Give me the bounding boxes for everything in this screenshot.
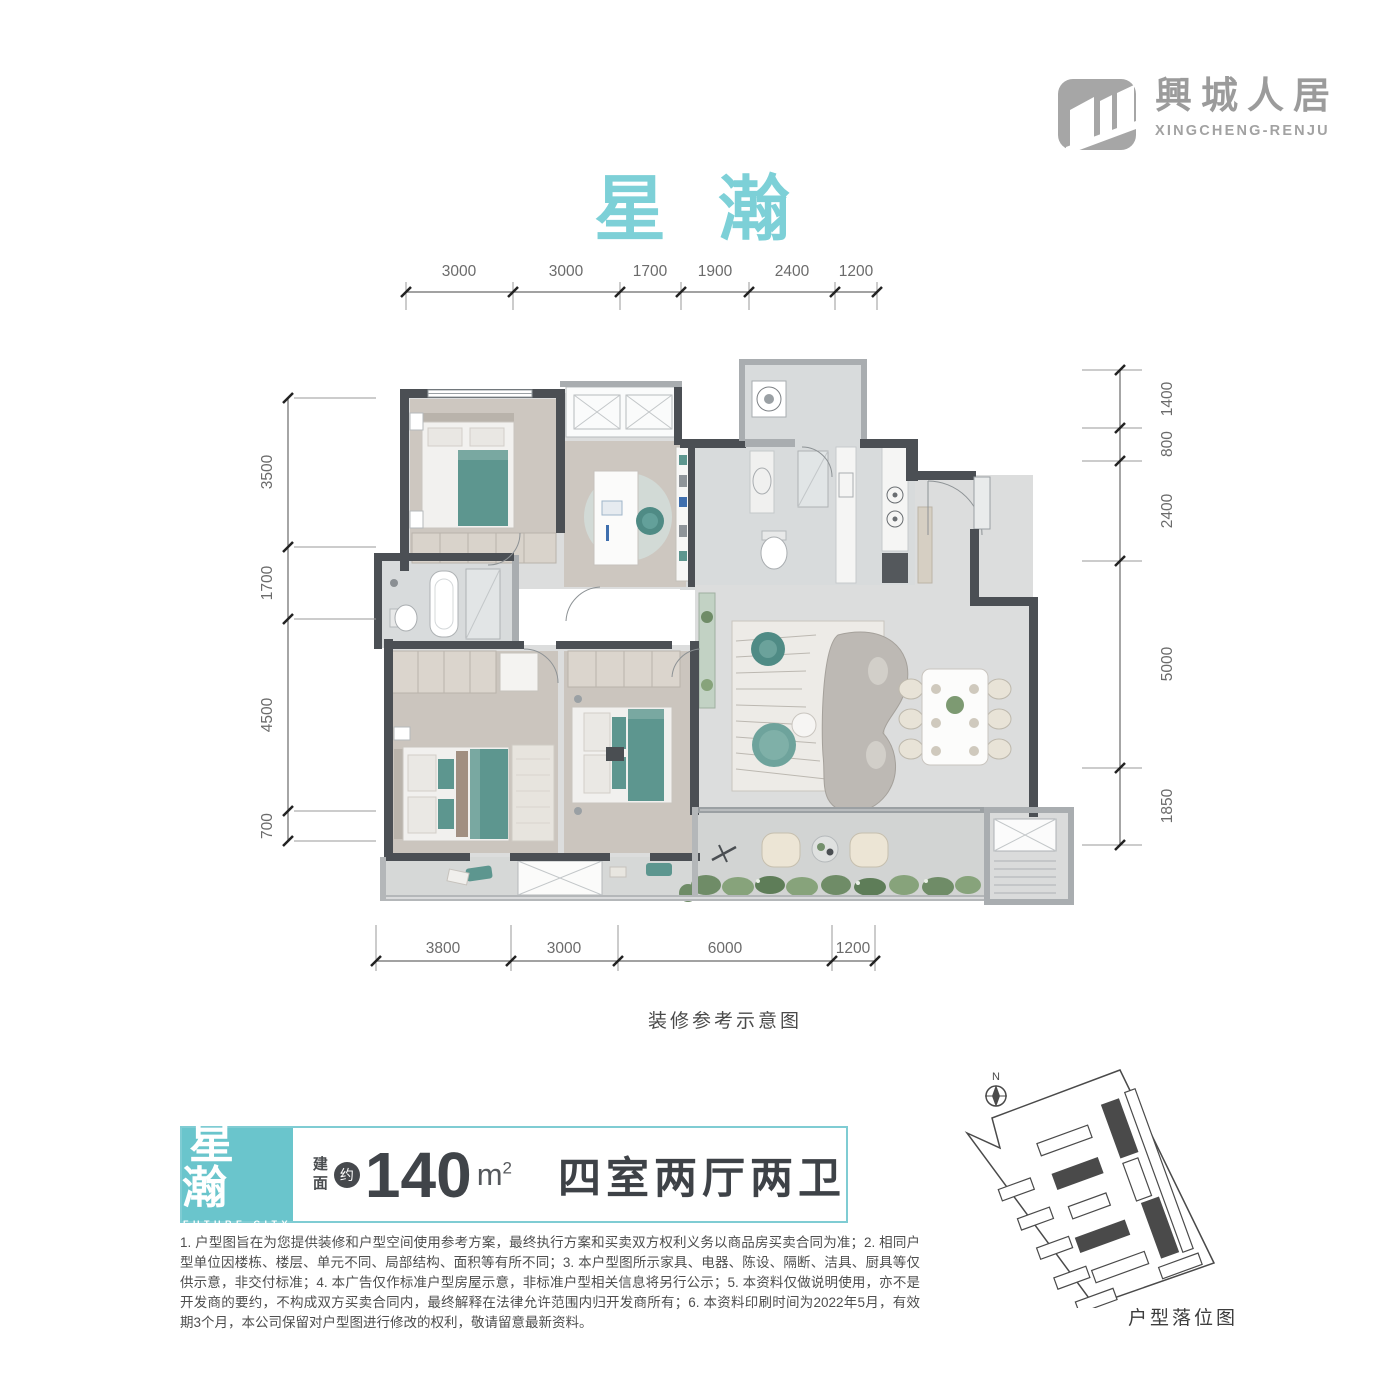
brand-logo: 興城人居 XINGCHENG-RENJU [1053,70,1339,158]
dim-bottom-3: 6000 [708,940,743,957]
brand-name-cn: 興城人居 [1155,76,1339,117]
compass-icon: N [985,1071,1007,1107]
area-label: 建 面 [313,1156,328,1194]
area-unit: m2 [477,1157,512,1193]
dim-top-5: 2400 [775,263,810,280]
area-label-line2: 面 [313,1175,328,1194]
area-unit-letter: m [477,1157,503,1192]
dim-bottom-4: 1200 [836,940,871,957]
dim-left-4: 700 [259,813,276,839]
unit-info-strip: 星瀚 FUTURE CITY 建 面 约 140 m2 四室两厅两卫 [180,1126,848,1223]
dimension-line-right: 1400 800 2400 5000 1850 [1082,362,1202,856]
floorplan-rendering [370,355,1080,925]
dim-top-4: 1900 [698,263,733,280]
area-value: 140 [365,1143,472,1207]
unit-specs: 建 面 约 140 m2 四室两厅两卫 [293,1128,846,1221]
dim-top-2: 3000 [549,263,584,280]
unit-badge: 星瀚 FUTURE CITY [182,1128,293,1221]
dim-left-1: 3500 [259,454,276,489]
dim-right-4: 5000 [1159,646,1176,681]
siteplan-map: N [952,1058,1262,1308]
dim-bottom-1: 3800 [426,940,461,957]
dim-right-3: 2400 [1159,493,1176,528]
area-label-line1: 建 [313,1156,328,1175]
area-approx-badge: 约 [334,1162,360,1188]
dimension-line-left: 3500 1700 4500 700 [258,390,378,850]
disclaimer-text: 1. 户型图旨在为您提供装修和户型空间使用参考方案，最终执行方案和买卖双方权利义… [180,1233,920,1333]
brand-text: 興城人居 XINGCHENG-RENJU [1155,70,1339,139]
dimension-line-top: 3000 3000 1700 1900 2400 1200 [400,252,884,310]
dim-right-2: 800 [1159,431,1176,457]
dim-left-3: 4500 [259,697,276,732]
dim-right-5: 1850 [1159,788,1176,823]
dim-bottom-2: 3000 [547,940,582,957]
compass-north-label: N [992,1071,1000,1083]
dim-left-2: 1700 [259,565,276,600]
badge-title: 星瀚 [182,1120,293,1210]
layout-type: 四室两厅两卫 [558,1144,846,1206]
poster-page: 興城人居 XINGCHENG-RENJU 星 瀚 [0,0,1400,1400]
plan-caption: 装修参考示意图 [370,1006,1080,1033]
dim-top-1: 3000 [442,263,477,280]
badge-subtitle: FUTURE CITY [183,1219,292,1229]
siteplan-caption: 户型落位图 [1128,1303,1238,1330]
area-unit-exponent: 2 [503,1158,512,1177]
dim-top-3: 1700 [633,263,668,280]
dim-right-1: 1400 [1159,381,1176,416]
floorplan-area [370,355,1080,925]
brand-logo-icon [1053,70,1141,158]
page-title: 星 瀚 [0,150,1400,255]
dim-top-6: 1200 [839,263,874,280]
brand-name-en: XINGCHENG-RENJU [1155,123,1339,139]
dimension-line-bottom: 3800 3000 6000 1200 [370,925,882,975]
